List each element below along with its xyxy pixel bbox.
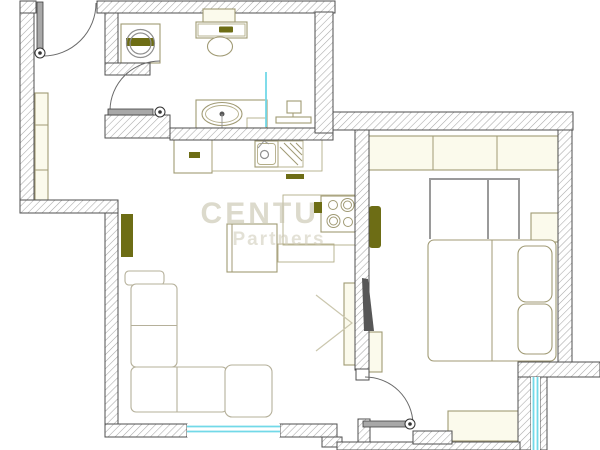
kitchen-drainer-lines — [280, 143, 302, 165]
bedroom-radiator — [369, 206, 381, 248]
wall-bath-south-left — [105, 115, 170, 138]
towel-radiator-box — [287, 101, 301, 113]
pillow-top — [518, 246, 552, 302]
sofa-chaise — [225, 365, 272, 417]
wall-jog-horizontal — [20, 200, 118, 213]
wall-top-left-corner — [20, 1, 36, 13]
living-radiator — [121, 214, 133, 257]
bath-niche — [203, 9, 235, 22]
towel-radiator-base — [276, 117, 311, 123]
floor-plan: CENTURY Partners — [0, 0, 600, 450]
floor-plan-canvas: CENTURY Partners — [0, 0, 600, 450]
overlay-layer — [362, 278, 374, 331]
bed-headboard — [430, 179, 519, 239]
wall-balcony-left-strip — [518, 377, 531, 450]
wall-end-cap — [356, 369, 369, 380]
kitchen-cabinet-handle — [286, 174, 304, 179]
toilet-flush-button — [219, 27, 233, 33]
pillow-bottom — [518, 304, 552, 354]
stove-knob — [314, 202, 322, 213]
wall-bedroom-west — [355, 130, 369, 370]
bedroom-door-arc — [365, 377, 413, 424]
wall-hall-bath-divider — [105, 13, 118, 67]
bedroom-door-leaf — [363, 421, 408, 427]
stove-body — [321, 196, 356, 232]
wall-bath-south-right — [170, 128, 333, 140]
wall-bottom-right — [413, 431, 452, 444]
bedroom-door-hinge-pin — [408, 422, 412, 426]
wall-living-south-b — [280, 424, 337, 437]
wall-bedroom-north — [333, 112, 573, 130]
wall-living-south-a — [105, 424, 187, 437]
bedroom-shelf — [368, 332, 382, 372]
window-balcony — [531, 377, 540, 450]
nightstand — [531, 213, 559, 242]
sofa-seats — [131, 367, 227, 412]
tv-screen — [362, 278, 374, 331]
bath-door-hinge-pin — [158, 110, 162, 114]
wall-bedroom-se — [518, 362, 600, 377]
bedroom-wardrobe — [368, 136, 558, 170]
entry-door-hinge-pin — [38, 51, 42, 55]
kitchen-sink — [255, 141, 278, 167]
wall-living-west — [105, 213, 118, 437]
wall-left-outer — [20, 1, 34, 206]
sofa-armrest — [125, 271, 164, 285]
bedroom-bench — [448, 411, 519, 441]
hall-wardrobe — [35, 93, 48, 200]
entry-door-arc — [43, 3, 96, 56]
fridge-handle — [189, 152, 200, 158]
wall-balcony-right-strip — [540, 377, 547, 450]
watermark-subtext: Partners — [232, 229, 325, 250]
bath-door-leaf — [108, 109, 153, 115]
toilet-bowl — [208, 37, 233, 56]
wall-bath-east — [315, 12, 333, 133]
wall-bedroom-east — [558, 130, 572, 365]
kitchen-drainer — [278, 141, 303, 167]
